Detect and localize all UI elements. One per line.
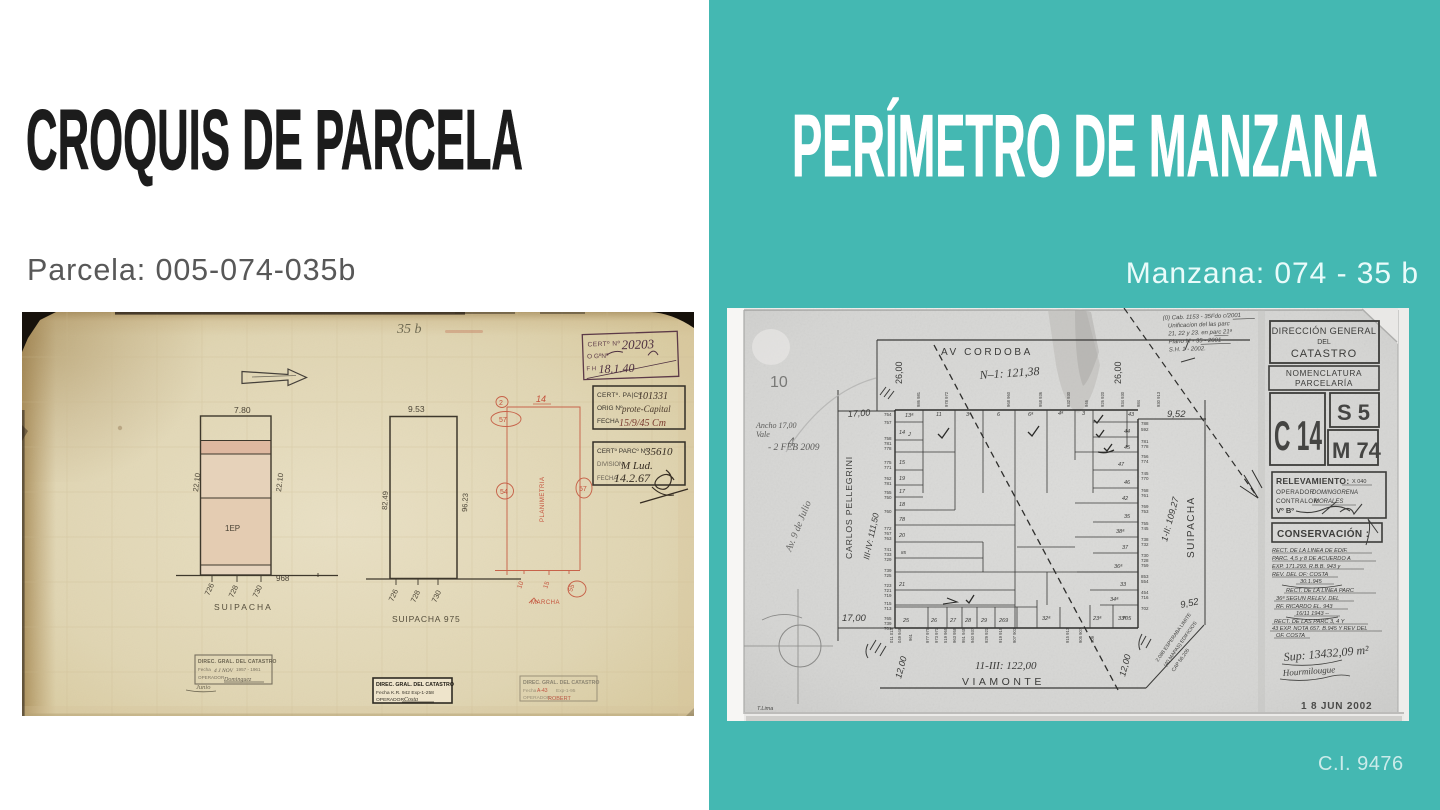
svg-text:759: 759 bbox=[1141, 563, 1149, 568]
svg-text:951 945: 951 945 bbox=[961, 627, 966, 643]
svg-text:MARCHA: MARCHA bbox=[531, 600, 560, 606]
svg-text:14: 14 bbox=[536, 394, 546, 404]
svg-text:1 8 JUN 2002: 1 8 JUN 2002 bbox=[1301, 701, 1372, 712]
svg-text:14: 14 bbox=[899, 430, 905, 436]
svg-text:PLANIMETRIA: PLANIMETRIA bbox=[540, 476, 546, 522]
svg-text:F H: F H bbox=[586, 366, 596, 372]
svg-text:519 965: 519 965 bbox=[943, 627, 948, 643]
svg-text:984: 984 bbox=[1136, 399, 1141, 407]
svg-text:754: 754 bbox=[884, 412, 892, 417]
svg-text:761: 761 bbox=[1141, 493, 1149, 498]
svg-text:21: 21 bbox=[898, 582, 905, 588]
svg-text:778: 778 bbox=[1141, 444, 1149, 449]
svg-text:25: 25 bbox=[902, 618, 910, 624]
svg-text:ORIG Nº: ORIG Nº bbox=[597, 405, 623, 412]
svg-text:36ª: 36ª bbox=[1114, 563, 1123, 570]
svg-text:4 J NOV: 4 J NOV bbox=[214, 667, 234, 674]
svg-text:DEL: DEL bbox=[1317, 339, 1331, 346]
svg-text:OPERADOR: OPERADOR bbox=[523, 695, 551, 701]
svg-text:T.Lima: T.Lima bbox=[757, 706, 773, 712]
svg-text:778: 778 bbox=[884, 446, 892, 451]
svg-text:763: 763 bbox=[884, 536, 892, 541]
svg-text:9,52: 9,52 bbox=[1167, 409, 1186, 420]
svg-text:17,00: 17,00 bbox=[842, 613, 866, 624]
svg-text:S 5: S 5 bbox=[1337, 400, 1370, 425]
svg-text:17,00: 17,00 bbox=[847, 407, 870, 419]
svg-text:11-III: 122,00: 11-III: 122,00 bbox=[975, 660, 1037, 672]
svg-text:RELEVAMIENTO:: RELEVAMIENTO: bbox=[1276, 476, 1349, 486]
svg-text:SUIPACHA: SUIPACHA bbox=[214, 602, 273, 612]
svg-text:926 920: 926 920 bbox=[1100, 391, 1105, 407]
svg-text:14.2.67: 14.2.67 bbox=[614, 471, 651, 485]
svg-text:CONTRALOR: CONTRALOR bbox=[1276, 498, 1318, 505]
svg-text:11: 11 bbox=[936, 412, 942, 418]
svg-text:DIREC. GRAL. DEL CATASTRO: DIREC. GRAL. DEL CATASTRO bbox=[198, 659, 277, 665]
svg-text:32ª: 32ª bbox=[1042, 615, 1051, 622]
svg-text:35610: 35610 bbox=[644, 446, 673, 458]
svg-text:907 903: 907 903 bbox=[1012, 627, 1017, 643]
svg-text:OPERADOR: OPERADOR bbox=[1276, 489, 1315, 496]
svg-text:986 981: 986 981 bbox=[916, 391, 921, 407]
svg-text:FECHA: FECHA bbox=[597, 418, 620, 425]
svg-text:42: 42 bbox=[1122, 496, 1128, 502]
svg-text:CERTº PARCº Nº: CERTº PARCº Nº bbox=[597, 448, 648, 455]
svg-text:85: 85 bbox=[901, 550, 907, 555]
svg-text:15/9/45 Cm: 15/9/45 Cm bbox=[619, 418, 666, 429]
svg-text:OPERADOR: OPERADOR bbox=[376, 697, 404, 703]
svg-text:757: 757 bbox=[884, 420, 892, 425]
svg-text:SUIPACHA: SUIPACHA bbox=[1186, 496, 1197, 558]
svg-text:1957 - 1961: 1957 - 1961 bbox=[236, 667, 261, 672]
svg-text:592: 592 bbox=[1141, 427, 1149, 432]
svg-text:20203: 20203 bbox=[621, 336, 655, 352]
svg-text:753: 753 bbox=[1141, 509, 1149, 514]
svg-text:781: 781 bbox=[884, 481, 892, 486]
svg-text:A-43: A-43 bbox=[537, 688, 548, 694]
svg-text:Fecha: Fecha bbox=[523, 688, 537, 694]
svg-text:29: 29 bbox=[980, 618, 987, 624]
svg-text:940 937: 940 937 bbox=[970, 627, 975, 643]
svg-text:DOMINGORENA: DOMINGORENA bbox=[1312, 490, 1358, 496]
svg-text:28: 28 bbox=[964, 618, 972, 624]
svg-text:771: 771 bbox=[884, 465, 892, 470]
svg-text:34ª: 34ª bbox=[1110, 596, 1119, 603]
svg-text:Vale: Vale bbox=[756, 430, 770, 439]
svg-text:934 930: 934 930 bbox=[1120, 391, 1125, 407]
svg-text:10: 10 bbox=[770, 374, 788, 391]
svg-text:57: 57 bbox=[499, 417, 507, 424]
svg-text:774: 774 bbox=[1141, 459, 1149, 464]
svg-text:554: 554 bbox=[1141, 579, 1149, 584]
svg-text:17: 17 bbox=[899, 489, 906, 495]
svg-text:prote-Capital: prote-Capital bbox=[621, 404, 671, 414]
svg-text:Vº Bº: Vº Bº bbox=[1276, 506, 1294, 515]
svg-text:909: 909 bbox=[1090, 635, 1095, 643]
svg-text:2: 2 bbox=[499, 400, 503, 407]
svg-text:760: 760 bbox=[884, 509, 892, 514]
svg-text:049 946: 049 946 bbox=[897, 627, 902, 643]
svg-text:CERTº. PA|Cº.: CERTº. PA|Cº. bbox=[597, 392, 643, 399]
svg-text:716: 716 bbox=[1141, 595, 1149, 600]
svg-text:26,00: 26,00 bbox=[894, 361, 904, 384]
svg-text:78: 78 bbox=[899, 517, 906, 523]
svg-text:Fecha K.R. 942 Exp-1-258: Fecha K.R. 942 Exp-1-258 bbox=[376, 690, 434, 696]
svg-text:CERTº Nº: CERTº Nº bbox=[588, 340, 621, 348]
svg-text:963 958: 963 958 bbox=[952, 627, 957, 643]
svg-text:968 960: 968 960 bbox=[1006, 391, 1011, 407]
svg-text:33ª: 33ª bbox=[1118, 615, 1127, 622]
svg-text:DIVISION: DIVISION bbox=[597, 462, 623, 468]
svg-text:44: 44 bbox=[1124, 429, 1130, 435]
svg-text:Junio: Junio bbox=[196, 684, 211, 691]
svg-text:AV CORDOBA: AV CORDOBA bbox=[941, 347, 1033, 358]
svg-text:713: 713 bbox=[884, 606, 892, 611]
svg-text:930 913: 930 913 bbox=[1156, 391, 1161, 407]
svg-text:961: 961 bbox=[908, 633, 913, 641]
svg-text:946: 946 bbox=[1084, 399, 1089, 407]
svg-text:977 975: 977 975 bbox=[925, 627, 930, 643]
svg-text:15: 15 bbox=[899, 460, 906, 466]
svg-text:57: 57 bbox=[579, 486, 587, 493]
svg-text:47: 47 bbox=[1118, 462, 1125, 468]
svg-text:37: 37 bbox=[1122, 545, 1129, 551]
svg-text:26,00: 26,00 bbox=[1113, 361, 1123, 384]
svg-text:NOMENCLATURA: NOMENCLATURA bbox=[1286, 368, 1362, 378]
svg-text:745: 745 bbox=[1141, 526, 1149, 531]
svg-text:7.80: 7.80 bbox=[234, 405, 251, 415]
svg-text:J: J bbox=[907, 432, 911, 438]
svg-text:919 915: 919 915 bbox=[998, 627, 1003, 643]
svg-text:DIREC. GRAL. DEL CATASTRO: DIREC. GRAL. DEL CATASTRO bbox=[523, 680, 599, 686]
svg-text:20: 20 bbox=[898, 533, 906, 539]
svg-text:9.53: 9.53 bbox=[408, 404, 425, 414]
svg-text:CONSERVACIÓN :: CONSERVACIÓN : bbox=[1277, 527, 1369, 540]
svg-text:26: 26 bbox=[930, 618, 938, 624]
svg-text:011 013: 011 013 bbox=[889, 628, 894, 643]
svg-text:54: 54 bbox=[500, 489, 508, 496]
svg-text:101331: 101331 bbox=[638, 391, 668, 402]
svg-text:43: 43 bbox=[1128, 412, 1135, 418]
svg-text:915 913: 915 913 bbox=[1065, 627, 1070, 643]
svg-text:Fecha: Fecha bbox=[198, 667, 211, 672]
svg-text:38ª: 38ª bbox=[1116, 528, 1125, 535]
svg-text:269: 269 bbox=[998, 618, 1008, 624]
svg-text:OPERADOR: OPERADOR bbox=[198, 675, 225, 680]
svg-text:PARCELARÍA: PARCELARÍA bbox=[1295, 378, 1353, 388]
svg-text:729: 729 bbox=[884, 557, 892, 562]
svg-text:750: 750 bbox=[884, 495, 892, 500]
svg-text:702: 702 bbox=[1141, 606, 1149, 611]
svg-text:Exp-1-95: Exp-1-95 bbox=[556, 688, 576, 694]
svg-text:27: 27 bbox=[949, 618, 957, 624]
svg-text:732: 732 bbox=[1141, 542, 1149, 547]
svg-text:725: 725 bbox=[884, 573, 892, 578]
svg-text:905 907: 905 907 bbox=[1078, 627, 1083, 643]
svg-text:973 971: 973 971 bbox=[934, 627, 939, 643]
svg-text:M 74: M 74 bbox=[1332, 438, 1382, 463]
svg-text:932 930: 932 930 bbox=[1066, 391, 1071, 407]
svg-text:719: 719 bbox=[884, 593, 892, 598]
svg-text:82.49: 82.49 bbox=[380, 491, 390, 510]
svg-text:958 936: 958 936 bbox=[1038, 391, 1043, 407]
svg-text:O GºNº: O GºNº bbox=[587, 353, 609, 361]
svg-text:SUIPACHA 975: SUIPACHA 975 bbox=[392, 614, 461, 624]
svg-text:DIREC. GRAL. DEL CATASTRO: DIREC. GRAL. DEL CATASTRO bbox=[376, 682, 454, 688]
svg-text:X 040: X 040 bbox=[1352, 479, 1366, 485]
svg-text:23ª: 23ª bbox=[1092, 615, 1102, 622]
svg-text:770: 770 bbox=[1141, 476, 1149, 481]
svg-text:CARLOS PELLEGRINI: CARLOS PELLEGRINI bbox=[844, 456, 854, 559]
svg-text:Ancho 17,00: Ancho 17,00 bbox=[755, 421, 796, 430]
svg-text:18.1.40: 18.1.40 bbox=[598, 361, 634, 376]
svg-text:978 972: 978 972 bbox=[944, 391, 949, 407]
svg-text:929 921: 929 921 bbox=[984, 627, 989, 643]
svg-text:35: 35 bbox=[1124, 514, 1131, 520]
svg-text:MORALES: MORALES bbox=[1314, 499, 1343, 505]
svg-text:45: 45 bbox=[1124, 445, 1131, 451]
svg-text:788: 788 bbox=[1141, 421, 1149, 426]
svg-text:18: 18 bbox=[899, 502, 906, 508]
svg-text:46: 46 bbox=[1124, 480, 1131, 486]
svg-text:35 b: 35 b bbox=[396, 322, 422, 337]
svg-text:33: 33 bbox=[1120, 582, 1127, 588]
svg-text:CATASTRO: CATASTRO bbox=[1291, 348, 1357, 360]
svg-text:96.23: 96.23 bbox=[460, 493, 470, 512]
svg-text:19: 19 bbox=[899, 476, 905, 482]
svg-text:DIRECCIÓN GENERAL: DIRECCIÓN GENERAL bbox=[1272, 326, 1377, 336]
svg-text:C 14: C 14 bbox=[1274, 412, 1322, 459]
svg-text:13ª: 13ª bbox=[905, 412, 914, 419]
svg-text:1EP: 1EP bbox=[225, 524, 240, 533]
svg-text:VIAMONTE: VIAMONTE bbox=[962, 676, 1045, 688]
svg-text:ROBERT: ROBERT bbox=[548, 696, 571, 702]
